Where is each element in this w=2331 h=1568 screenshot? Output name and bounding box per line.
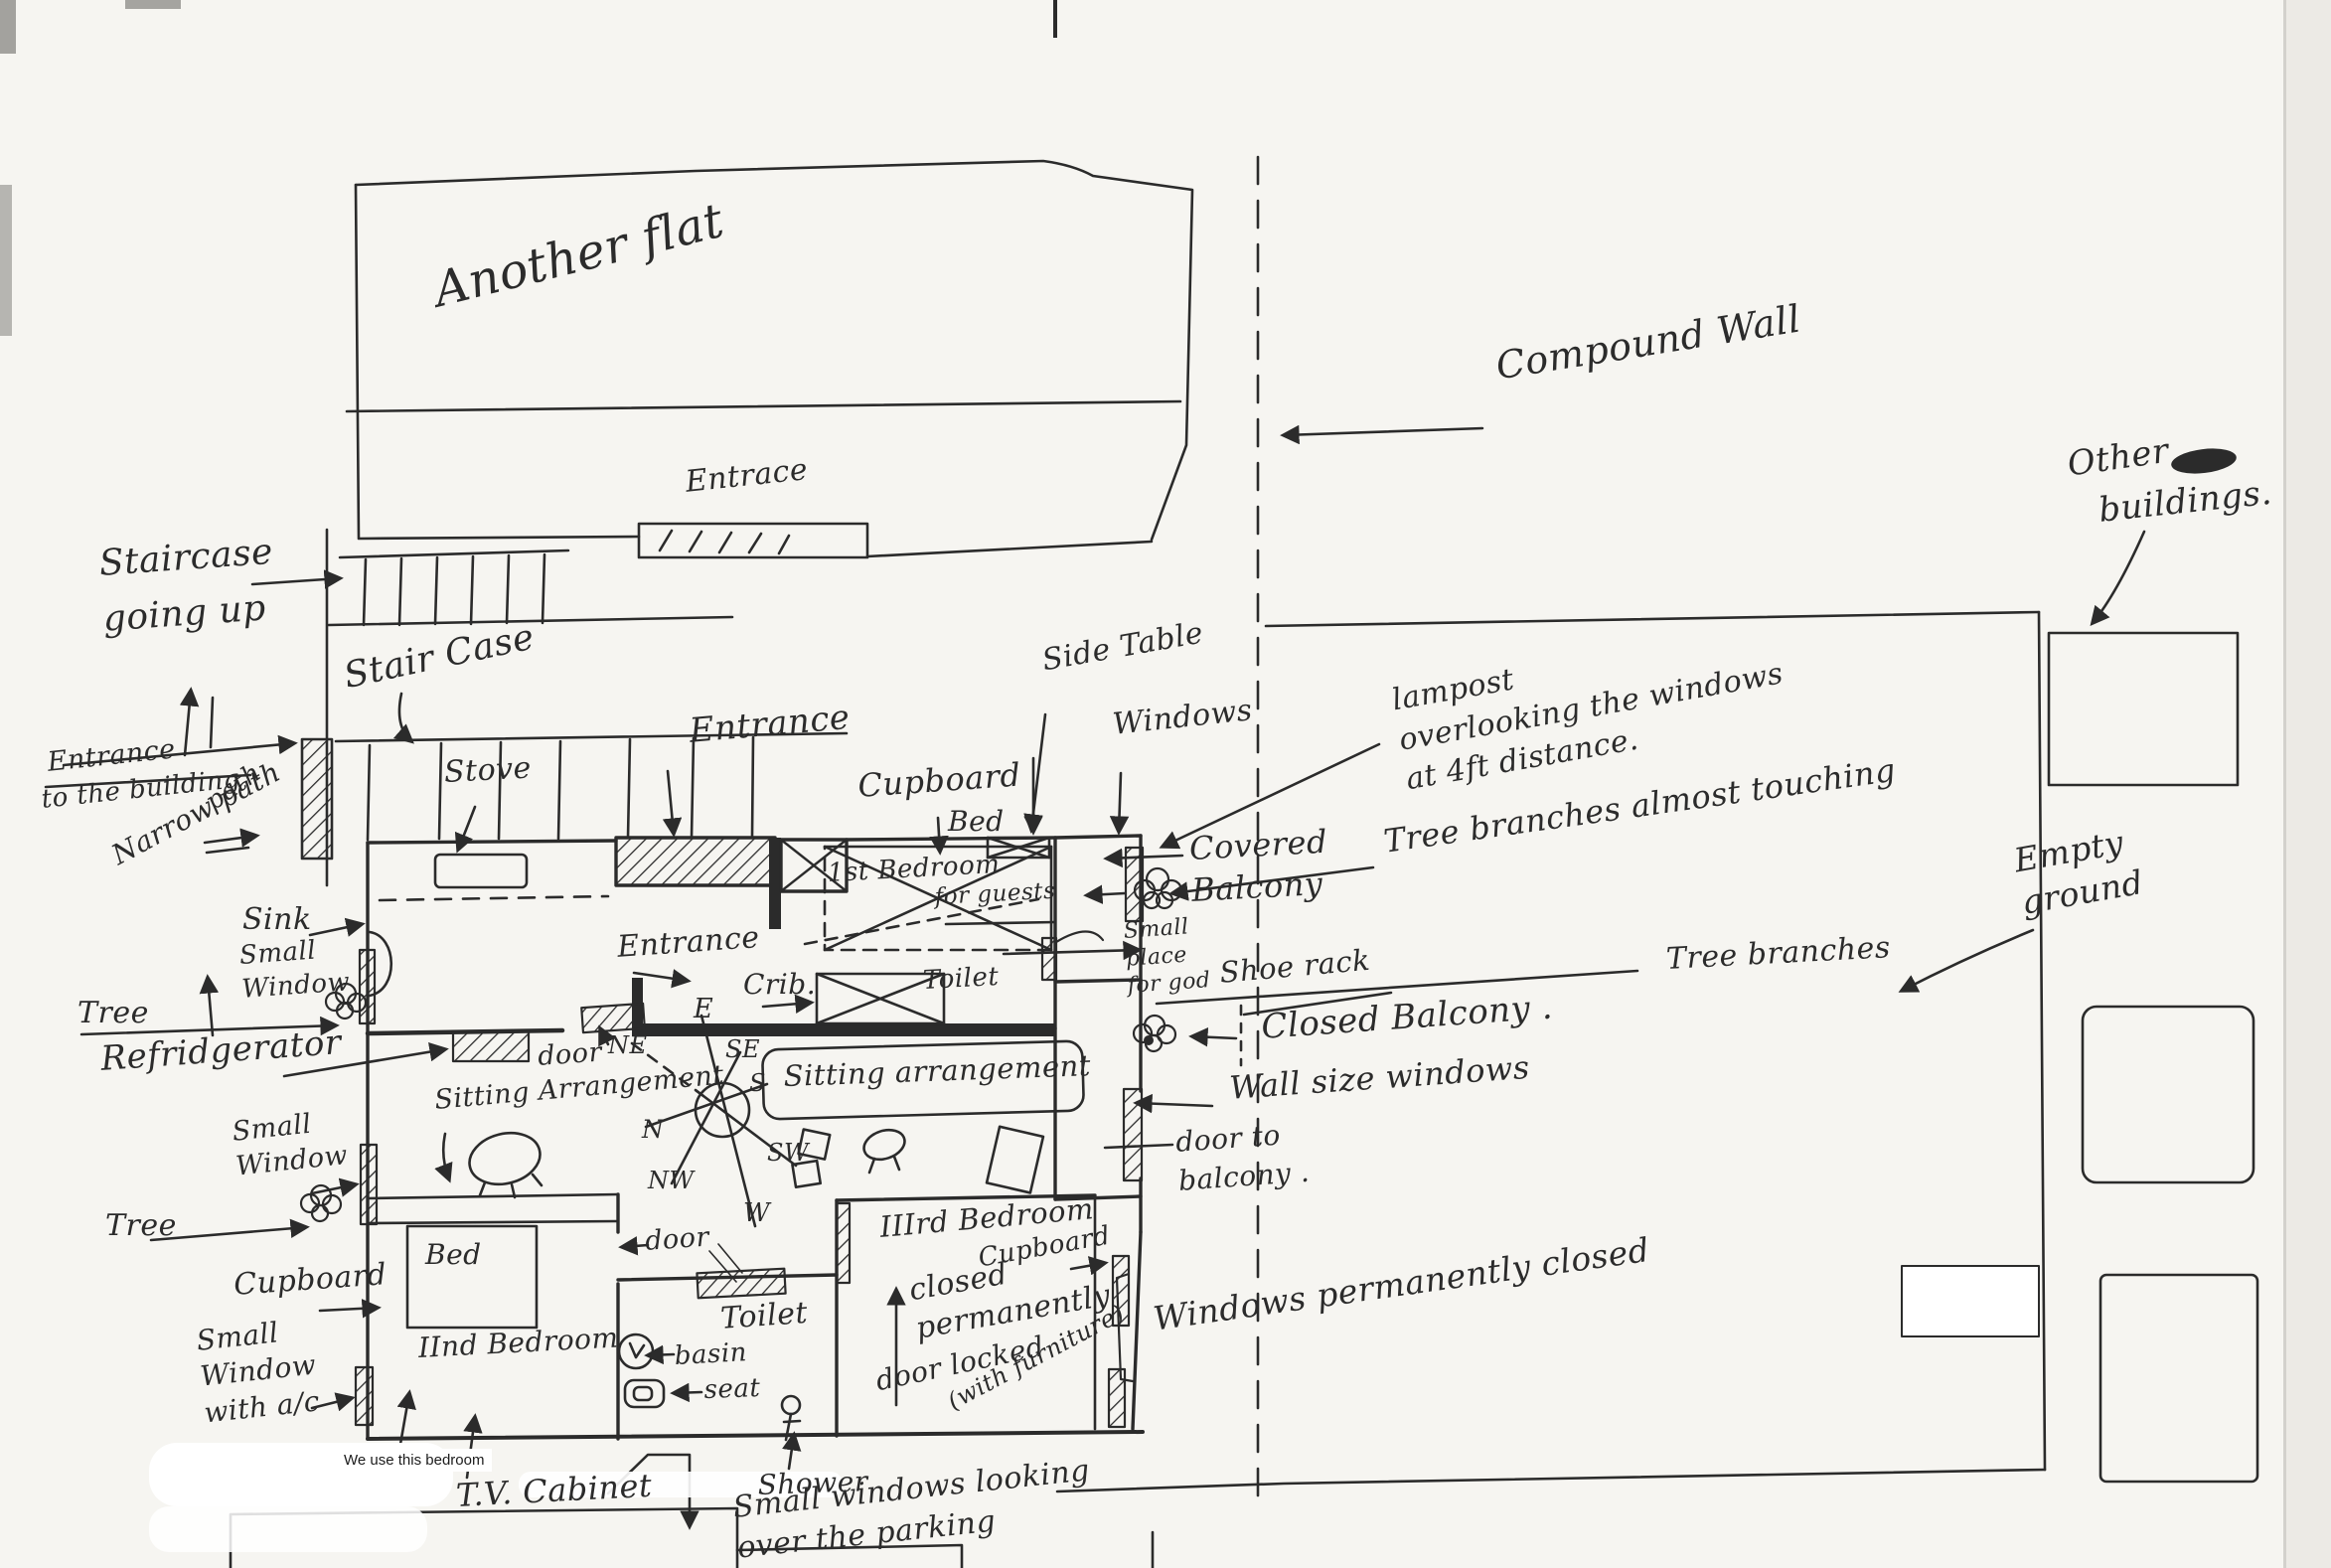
label-crib: Crib. [743,966,816,1004]
compass-se: SE [725,1033,760,1065]
label-covered-balcony: Covered Balcony [1188,822,1330,911]
another-flat-outline [347,161,1192,557]
label-stove: Stove [443,748,533,793]
label-sink: Sink [242,900,312,941]
compass-ne: NE [608,1029,648,1061]
label-staircase-going-up: Staircase going up [97,525,279,648]
compass-n: N [642,1113,664,1147]
compass-w: W [743,1196,770,1231]
compass-e: E [694,992,713,1027]
label-bed-2: Bed [425,1236,482,1274]
label-small-window-living: Small Window [231,1103,350,1184]
label-small-window-kitchen: Small Window [238,932,351,1007]
label-tree-lower: Tree [105,1206,177,1247]
label-small-window-ac: Small Window with a/c [195,1312,322,1432]
label-toilet-1: Toilet [922,960,1000,999]
floor-plan-sketch: Another flat Entrace Compound Wall Other… [0,0,2331,1568]
label-bed-top: Bed [948,803,1005,841]
label-toilet-2: Toilet [719,1294,809,1340]
label-door-living: door [644,1219,710,1260]
label-guest-bedroom-2: for guests [934,876,1056,913]
compass-nw: NW [648,1165,695,1196]
compass-sw: SW [767,1137,809,1169]
typed-note-we-use-this-bedroom: We use this bedroom [336,1449,492,1472]
label-basin: basin [674,1335,748,1374]
compass-s: S [749,1067,766,1099]
label-seat: seat [703,1371,761,1408]
label-god-place: Small place for god [1123,912,1211,1000]
label-tree-upper: Tree [78,994,149,1034]
label-door-to-balcony: door to balcony . [1174,1114,1311,1200]
